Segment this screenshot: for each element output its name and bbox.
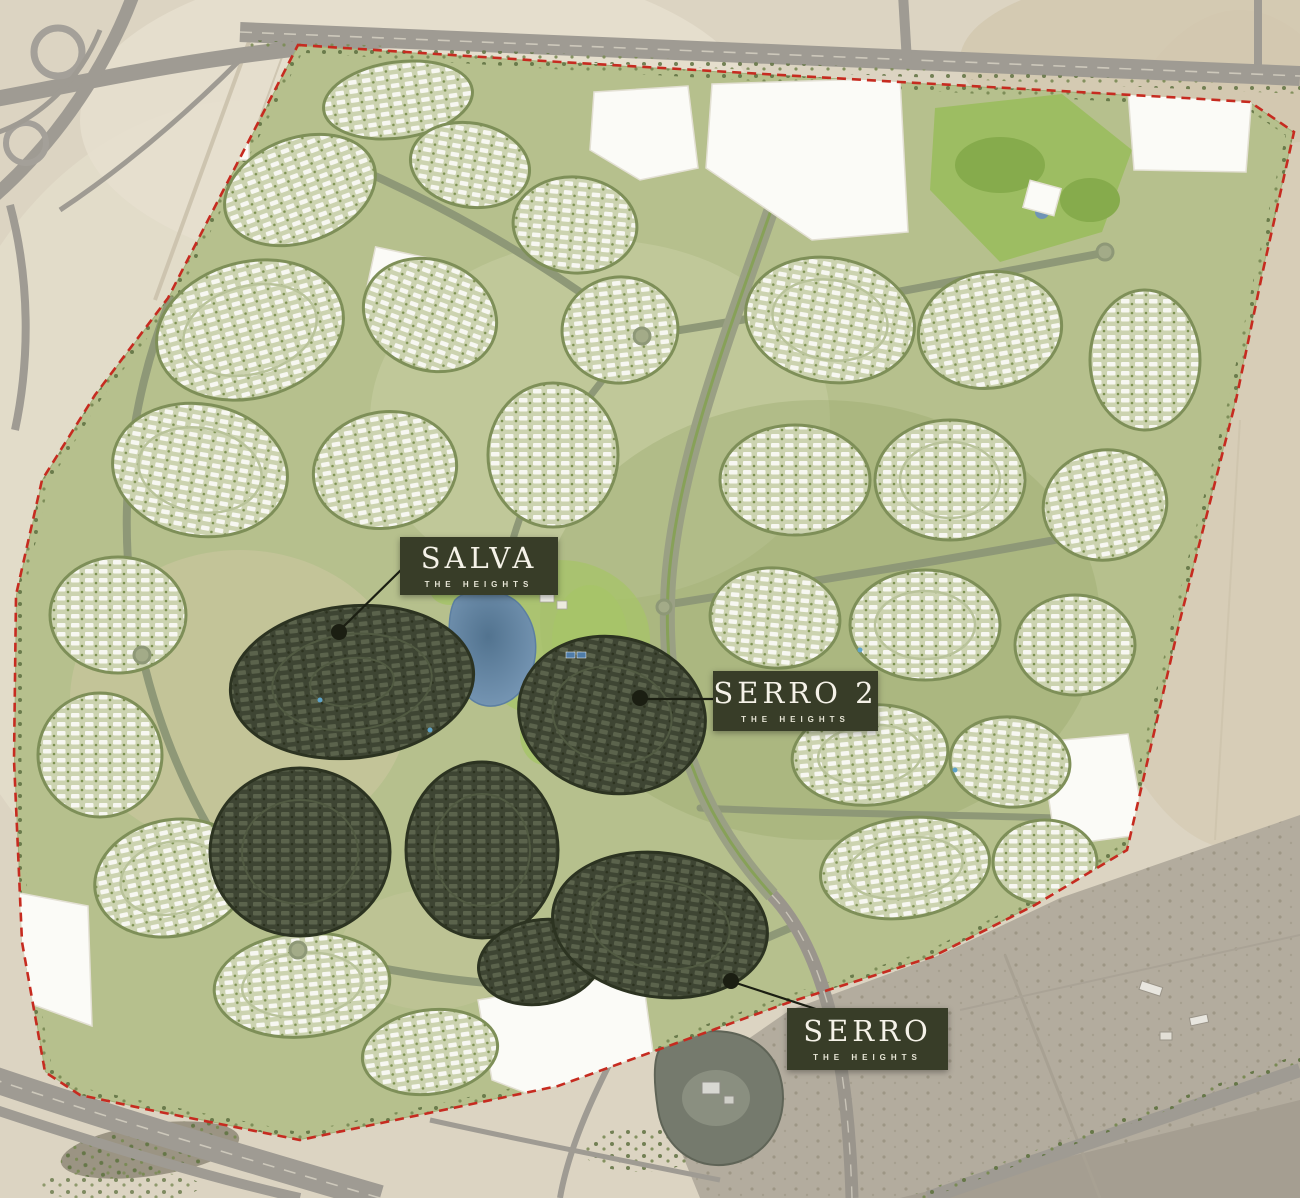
masterplan-image: SALVA THE HEIGHTS SERRO 2 THE HEIGHTS SE…: [0, 0, 1300, 1198]
salva-map-dot: [331, 624, 347, 640]
masterplan-map: [0, 0, 1300, 1198]
community-subtitle: THE HEIGHTS: [425, 580, 534, 589]
serro-map-dot: [723, 973, 739, 989]
community-name: SALVA: [421, 544, 538, 573]
community-subtitle: THE HEIGHTS: [741, 715, 850, 724]
community-name: SERRO: [803, 1017, 931, 1046]
serro2-map-dot: [632, 690, 648, 706]
label-serro-2[interactable]: SERRO 2 THE HEIGHTS: [713, 671, 878, 731]
label-serro[interactable]: SERRO THE HEIGHTS: [787, 1008, 948, 1070]
community-subtitle: THE HEIGHTS: [813, 1053, 922, 1062]
reservoir-pond: [655, 1031, 783, 1165]
community-name: SERRO 2: [713, 679, 877, 708]
label-salva[interactable]: SALVA THE HEIGHTS: [400, 537, 558, 595]
